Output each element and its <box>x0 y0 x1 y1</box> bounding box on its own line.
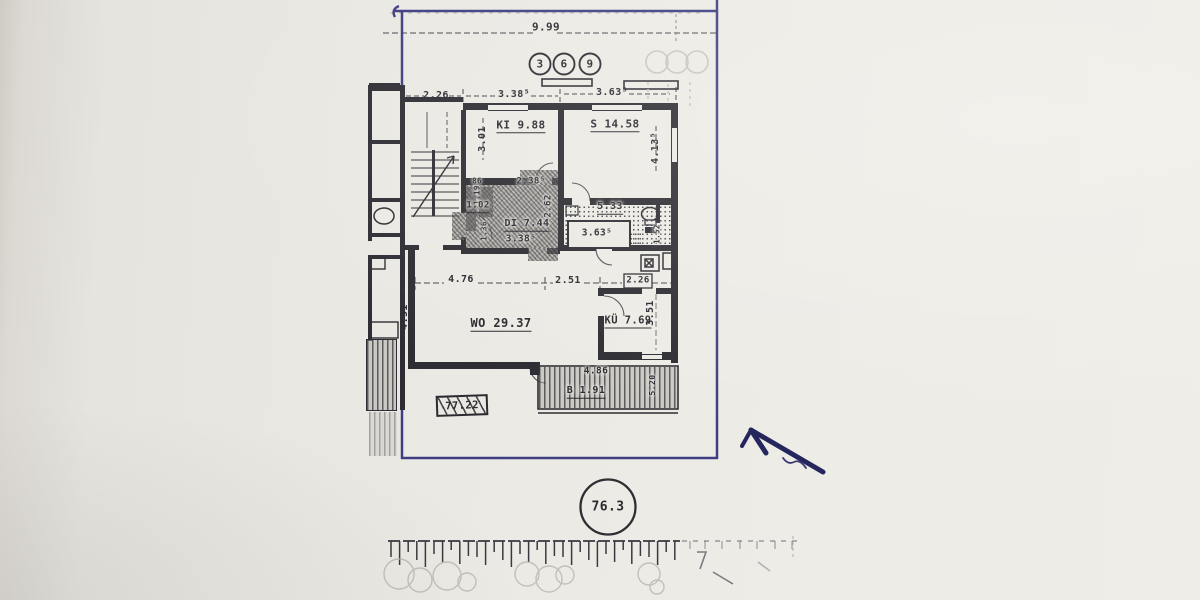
wall-segment <box>563 198 572 205</box>
total-area-circled: 76.3 <box>592 501 625 514</box>
dim-wo-seg3: 2.26 <box>626 277 649 286</box>
neighbour-box <box>371 258 385 269</box>
wall-segment <box>598 352 642 360</box>
dim-hall-width: 3.38⁵ <box>506 234 537 244</box>
dim-store-width: 86 <box>472 177 482 185</box>
dim-hall-top: 2.38⁵ <box>516 178 545 187</box>
neighbour-balcony-hatch <box>367 340 396 410</box>
dim-bath-width: 3.63⁵ <box>582 228 613 238</box>
total-area-boxed: 77.22 <box>445 400 479 412</box>
wall-segment <box>461 248 529 254</box>
wall-segment <box>368 255 372 341</box>
room-label-wo: WO 29.37 <box>471 317 532 332</box>
dim-overall-width: 9.99 <box>532 22 560 33</box>
dim-kitchen-depth: 3.51 <box>646 300 656 326</box>
dim-balcony-width: 4.86 <box>584 366 608 376</box>
wall-segment <box>558 110 564 185</box>
room-label-ki: KI 9.88 <box>496 119 545 133</box>
wall-segment <box>405 245 419 250</box>
wall-segment <box>368 85 372 241</box>
dim-hall-depth: 2.62 <box>545 194 554 217</box>
wall-segment <box>598 288 604 296</box>
window-opening <box>592 104 642 111</box>
room-label-s: S 14.58 <box>590 118 639 132</box>
floor-plan-scan: 9.99 2.26 3.38⁵ 3.63⁵ 3 6 9 3.01 KI 9.88… <box>0 0 1200 600</box>
neighbour-balcony-hatch <box>369 412 397 456</box>
hall-pencil-hatch <box>528 248 558 261</box>
wall-segment <box>368 140 400 144</box>
wall-segment <box>368 255 400 259</box>
wall-segment <box>369 83 400 91</box>
dim-wo-seg2: 2.51 <box>555 276 581 286</box>
bathtub-icon <box>374 208 394 224</box>
wall-segment <box>408 362 530 369</box>
hand-drawn-arrow <box>742 430 823 472</box>
dim-wo-depth: 4.51 <box>400 304 410 330</box>
wall-segment <box>662 352 678 360</box>
wall-segment <box>432 150 435 216</box>
neighbour-window-box <box>369 322 398 338</box>
wall-segment <box>368 233 400 237</box>
dim-wo-seg1: 4.76 <box>448 275 474 285</box>
window-opening <box>671 128 678 162</box>
room-label-store: 1.02 <box>466 201 489 213</box>
dim-store-side: 1.36 <box>480 221 488 241</box>
lintel-mark <box>624 81 678 89</box>
ghost-circles <box>646 51 708 108</box>
unit-badge-6: 6 <box>560 59 567 70</box>
room-label-hall: DI 7.44 <box>505 219 550 232</box>
lintel-mark <box>542 79 592 86</box>
total-area-boxed-stamp: 77.22 <box>436 394 489 417</box>
scribbles <box>697 552 770 584</box>
window-opening <box>488 104 528 111</box>
unit-badge-9: 9 <box>586 59 593 70</box>
wall-segment <box>443 245 463 250</box>
room-label-balcony: B 1.91 <box>567 386 606 399</box>
dim-bath-depth: 1.52 <box>653 224 661 244</box>
dim-s-depth: 4.13⁵ <box>651 132 661 164</box>
wall-segment <box>461 110 466 178</box>
dim-s-width: 3.63⁵ <box>596 88 628 98</box>
hall-pencil-hatch <box>452 212 466 240</box>
wall-segment <box>598 288 642 294</box>
unit-badge-3: 3 <box>536 59 543 70</box>
dim-ki-depth: 3.01 <box>478 126 488 152</box>
wall-segment <box>656 288 678 294</box>
window-opening <box>642 354 662 360</box>
room-label-bath: 5.33 <box>597 202 623 215</box>
dim-ki-width: 3.38⁵ <box>498 90 530 100</box>
wall-segment <box>368 198 400 202</box>
dim-balcony-side: 5.20 <box>649 375 657 396</box>
dim-stair-width: 2.26 <box>423 91 449 101</box>
